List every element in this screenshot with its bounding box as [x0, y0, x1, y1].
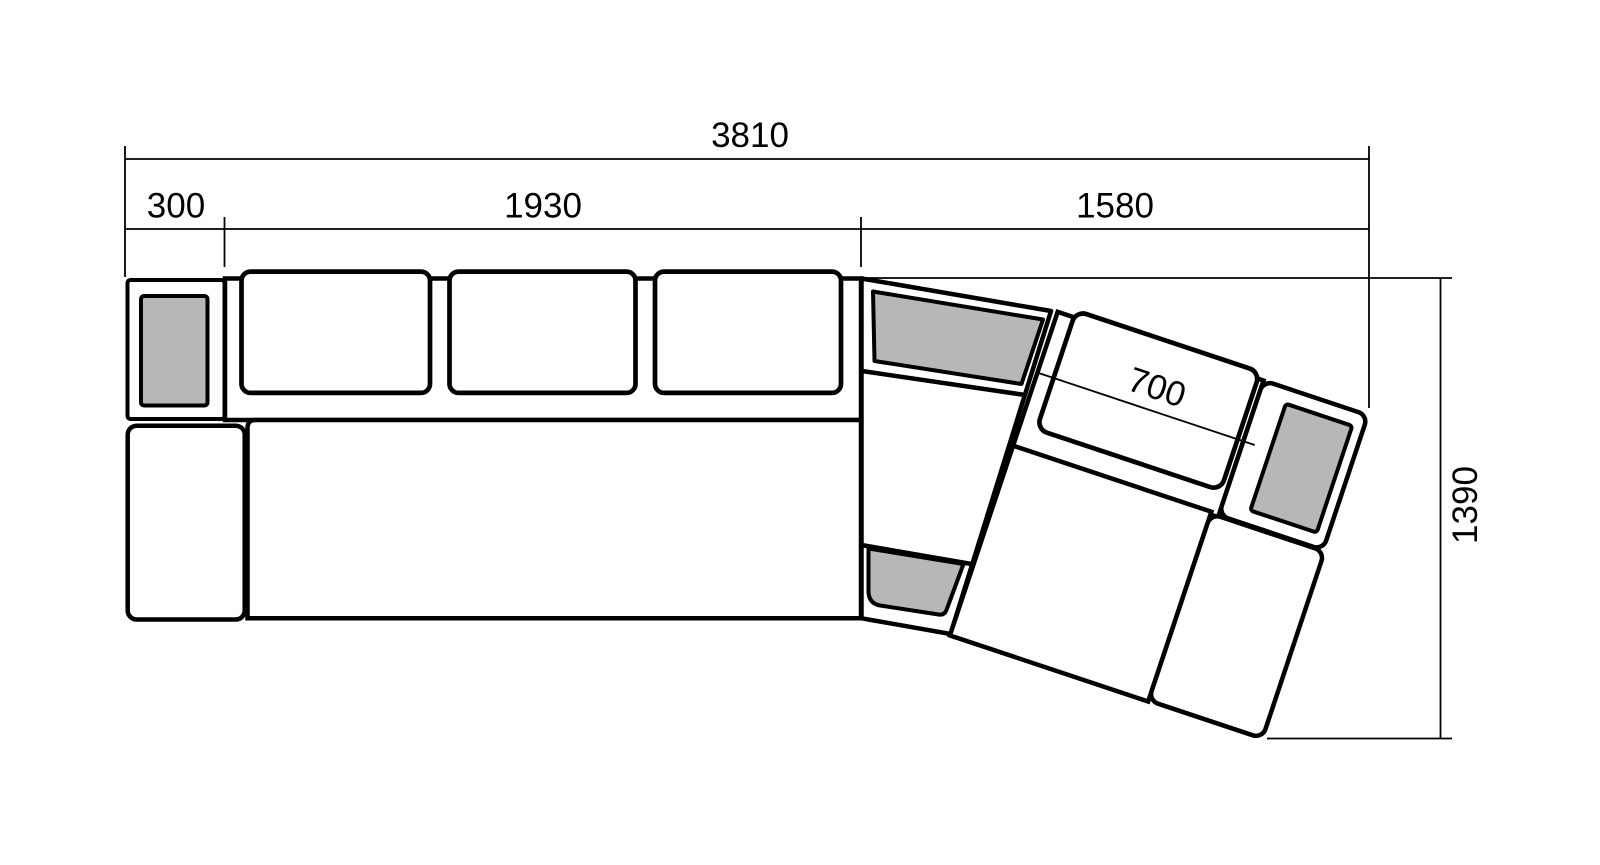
svg-text:1930: 1930: [504, 187, 582, 226]
svg-text:300: 300: [147, 187, 205, 226]
svg-text:1390: 1390: [1446, 466, 1485, 544]
svg-text:1580: 1580: [1076, 187, 1154, 226]
svg-text:3810: 3810: [711, 116, 789, 155]
